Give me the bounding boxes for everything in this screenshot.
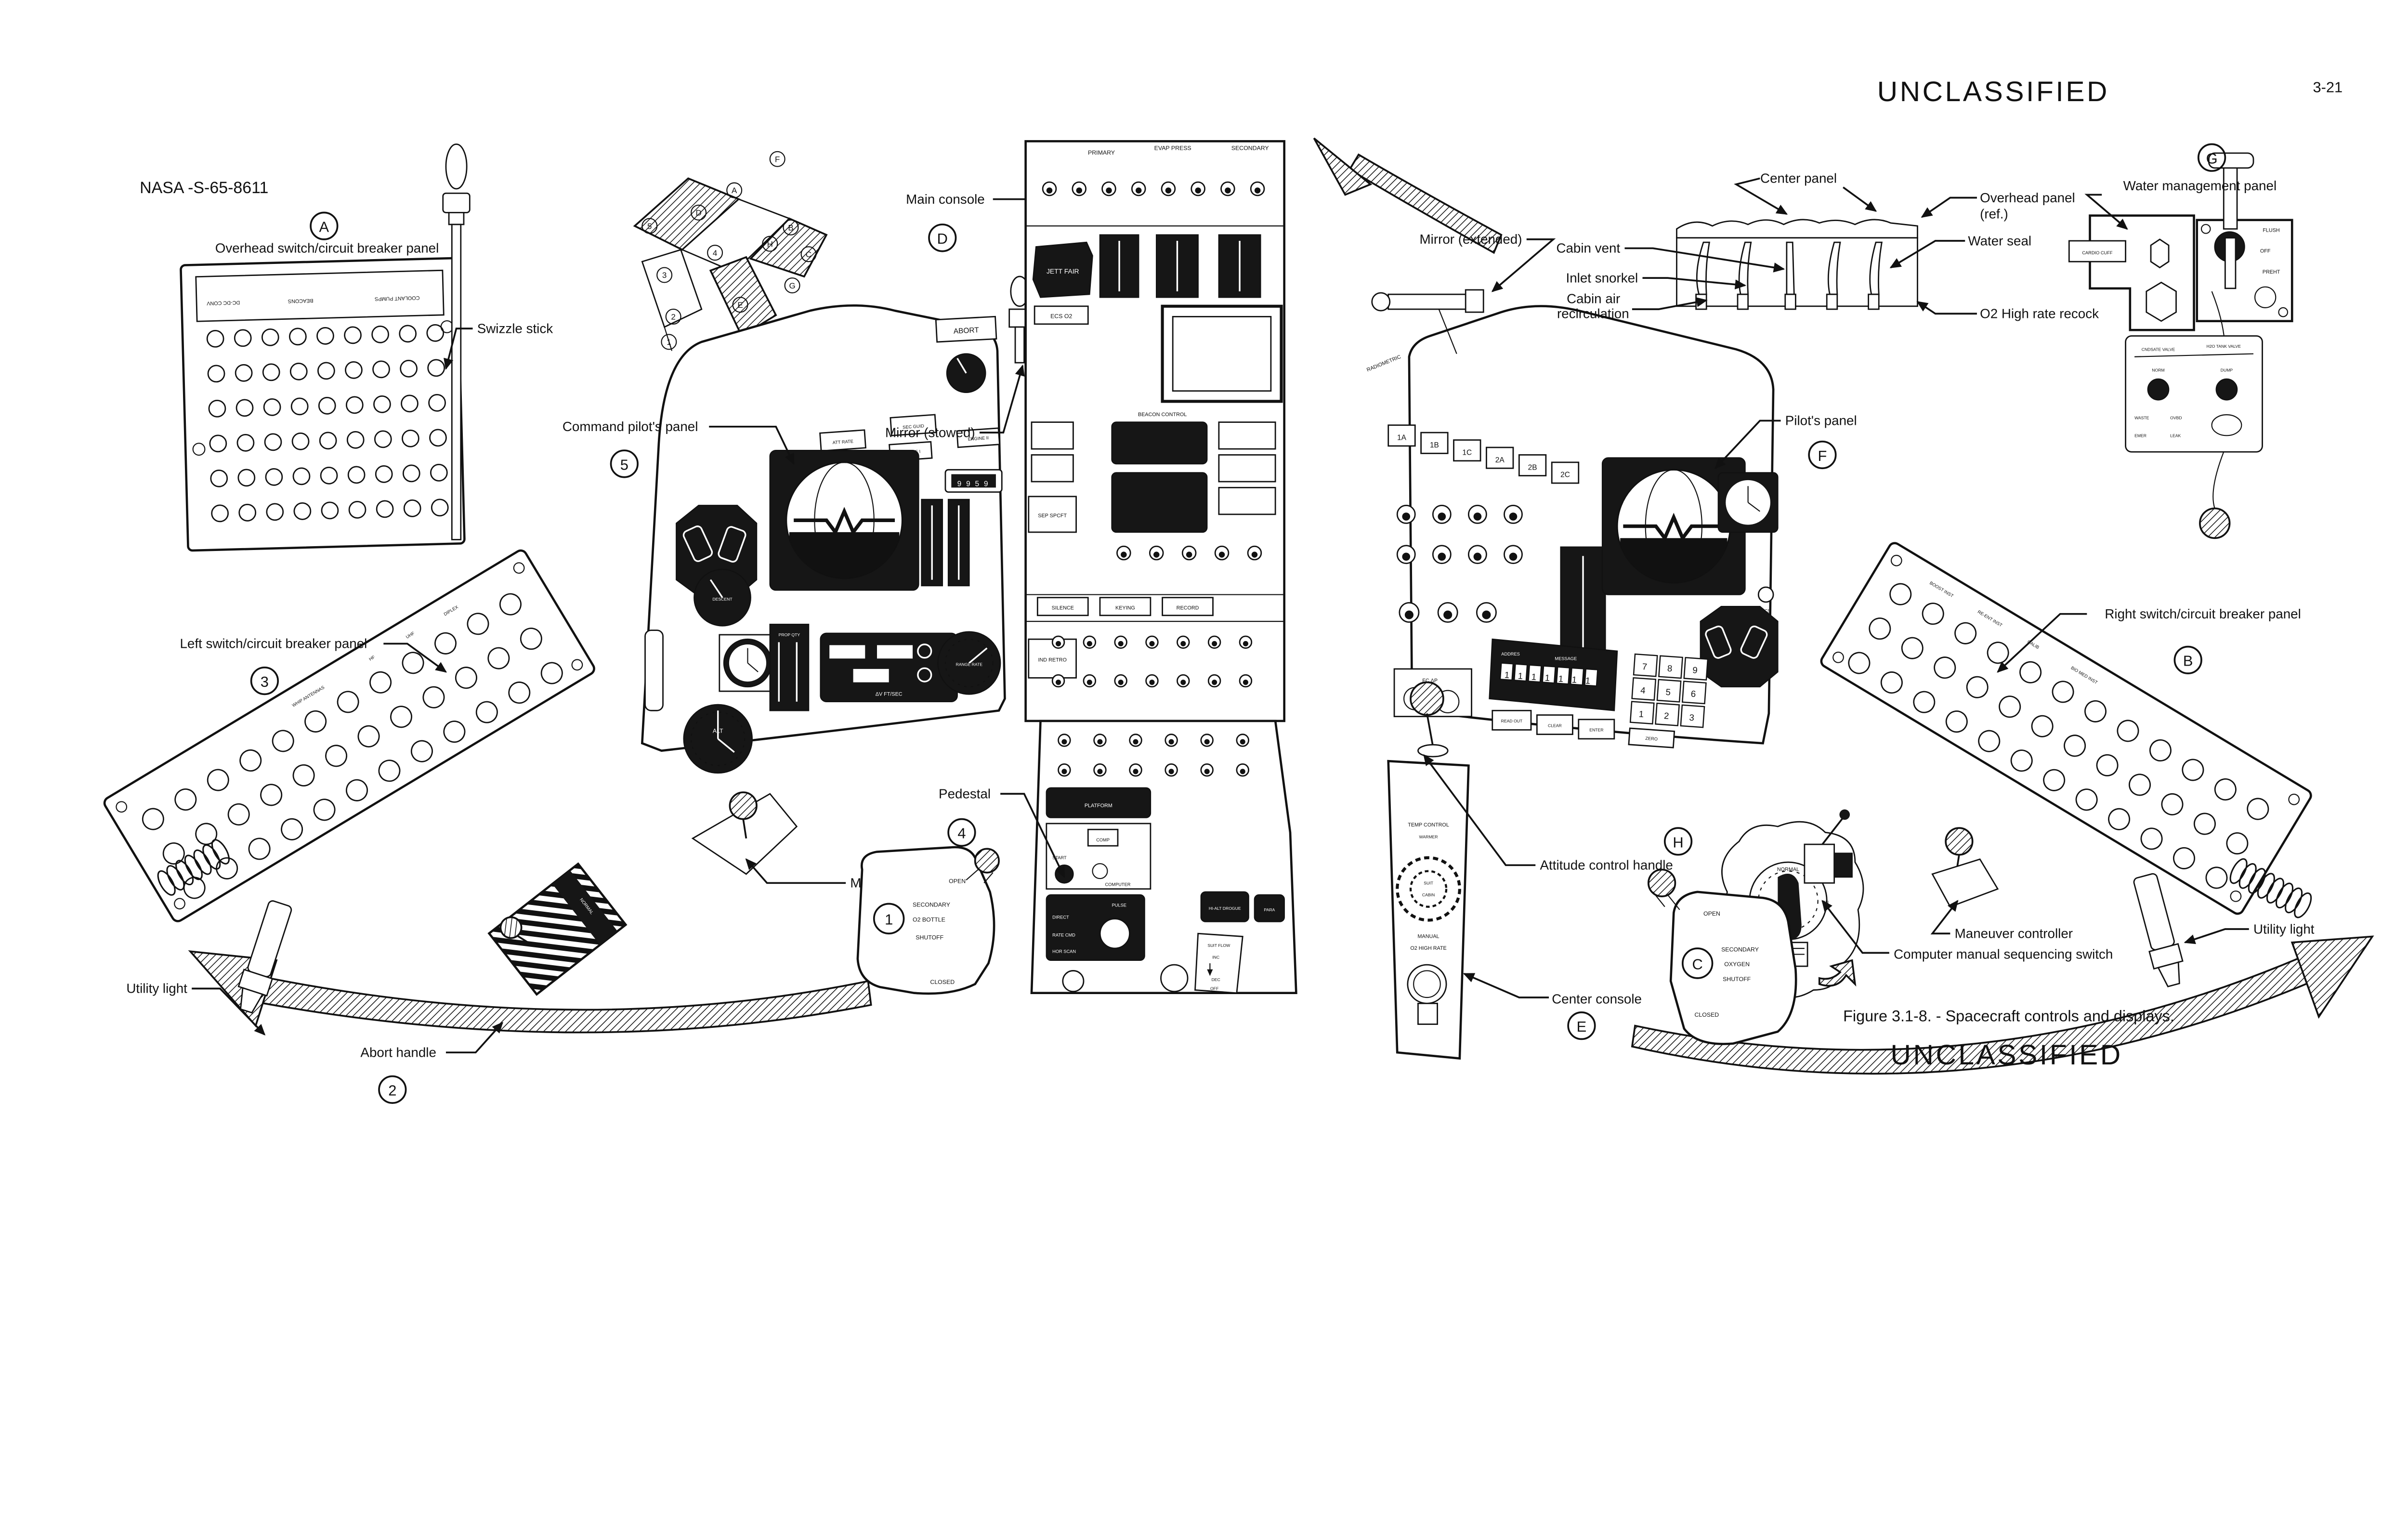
inset-ref: G [789, 281, 795, 290]
callout-label: Mirror (stowed) [885, 425, 975, 440]
svg-text:NORM: NORM [2152, 368, 2164, 373]
purge-switch-row [1400, 603, 1496, 622]
center-console: TEMP CONTROL WARMER SUIT CABIN MANUAL O2… [1388, 761, 1469, 1058]
svg-text:PULSE: PULSE [1112, 903, 1126, 908]
ref-letter: D [937, 230, 948, 247]
svg-text:8: 8 [1667, 663, 1673, 674]
svg-text:5: 5 [1665, 687, 1671, 697]
delta-v-panel: ΔV FT/SEC [821, 633, 957, 702]
panel-marking: EVAP PRESS [1154, 145, 1191, 152]
callout-label: Center console [1552, 991, 1642, 1006]
inset-ref: 2 [671, 313, 675, 322]
callout-label: Command pilot's panel [563, 419, 698, 434]
callout-o2-high-rate-recock: O2 High rate recock [1917, 302, 2099, 321]
utility-light-right [2130, 872, 2188, 989]
callout-label: Utility light [126, 981, 187, 996]
ref-letter: B [2183, 653, 2193, 669]
jett-fair-button: JETT FAIR [1033, 242, 1092, 297]
callout-label: Computer manual sequencing switch [1894, 947, 2113, 962]
altimeter: ALT [684, 705, 752, 773]
svg-text:COMP: COMP [1096, 838, 1110, 842]
overhead-switch-circuit-breaker-panel: COOLANT PUMPS BEACONS DC-DC CONV [181, 258, 464, 551]
valve-label: OXYGEN [1724, 961, 1750, 968]
svg-text:6: 6 [1690, 689, 1696, 699]
panel-marking: KEYING [1115, 605, 1135, 611]
attitude-control-handle-stick [1411, 682, 1448, 757]
ref-letter: A [319, 218, 329, 235]
callout-label: Mirror (extended) [1420, 232, 1522, 247]
svg-text:1B: 1B [1430, 441, 1439, 449]
svg-text:OVBD: OVBD [2170, 415, 2182, 420]
svg-text:DUMP: DUMP [2221, 368, 2233, 373]
svg-text:JETT FAIR: JETT FAIR [1047, 267, 1079, 275]
para-button: PARA [1255, 895, 1284, 922]
inset-ref: B [788, 223, 793, 232]
svg-text:MESSAGE: MESSAGE [1555, 656, 1577, 661]
cardio-cuff-tab: CARDIO CUFF [2069, 241, 2125, 262]
inset-ref: 3 [662, 271, 667, 280]
maneuver-controller-right [1932, 828, 1998, 907]
callout-label: Cabin vent [1556, 241, 1620, 256]
ref-letter: E [1577, 1018, 1587, 1035]
platform-panel: PLATFORM [1047, 788, 1151, 818]
range-rate-gauge: RANGE RATE [938, 632, 1001, 695]
classification-top: UNCLASSIFIED [1877, 76, 2109, 107]
callout-label: (ref.) [1980, 207, 2008, 222]
svg-text:DEC: DEC [1212, 977, 1220, 982]
figure-caption: Figure 3.1-8. - Spacecraft controls and … [1843, 1007, 2174, 1024]
abort-handle: NORMAL [488, 863, 626, 994]
svg-text:ΔV FT/SEC: ΔV FT/SEC [876, 691, 903, 697]
callout-utility-light-right: Utility light [2185, 921, 2315, 943]
computer-panel: COMP START COMPUTER [1047, 824, 1151, 889]
svg-text:READ OUT: READ OUT [1501, 719, 1523, 723]
panel-marking: RECORD [1177, 605, 1199, 611]
panel-marking: SECONDARY [1231, 145, 1269, 152]
callout-main-console: Main console D [906, 192, 1039, 276]
svg-text:1: 1 [1638, 709, 1644, 720]
valve-label: CLOSED [1695, 1011, 1719, 1018]
svg-text:PROP QTY: PROP QTY [779, 632, 800, 637]
panel-marking: ECS O2 [1050, 313, 1072, 319]
callout-maneuver-controller-right: Maneuver controller [1932, 901, 2073, 941]
clock [720, 635, 776, 691]
panel-marking: BEACONS [288, 298, 314, 304]
valve-label: OPEN [1703, 910, 1720, 917]
callout-label: Maneuver controller [1955, 926, 2073, 941]
inset-ref: C [806, 250, 811, 259]
ref-letter: G [2206, 150, 2218, 167]
callout-label: Overhead switch/circuit breaker panel [215, 241, 439, 256]
main-console: PRIMARY EVAP PRESS SECONDARY JETT FAIR E… [1026, 141, 1284, 721]
svg-text:9: 9 [1692, 665, 1698, 675]
classification-bottom: UNCLASSIFIED [1891, 1039, 2123, 1071]
panel-marking: PREHT [2263, 269, 2280, 275]
ref-letter: H [1673, 834, 1683, 851]
callout-mirror-extended: Mirror (extended) [1420, 232, 1554, 291]
valve-label: SECONDARY [1721, 946, 1759, 953]
panel-marking: WARMER [1419, 835, 1438, 839]
panel-marking: COOLANT PUMPS [375, 295, 420, 302]
attitude-control-panel: PULSE DIRECT RATE CMD HOR SCAN ATTITUDE … [1047, 895, 1145, 971]
panel-marking: DC-DC CONV [206, 300, 240, 306]
callout-center-panel: Center panel [1736, 171, 1876, 214]
panel-marking: TEMP CONTROL [1408, 822, 1449, 828]
event-timer: 9959 [945, 470, 1002, 492]
ref-letter: C [1692, 956, 1703, 972]
svg-text:RATE CMD: RATE CMD [1052, 932, 1075, 937]
inset-ref: 1 [667, 338, 671, 347]
pedestal: PLATFORM COMP START COMPUTER PULSE DIREC… [1032, 721, 1296, 993]
inset-ref: E [737, 301, 743, 310]
ref-letter: F [1818, 447, 1827, 464]
clock [1718, 472, 1778, 532]
svg-text:ATTITUDE CONTROL: ATTITUDE CONTROL [1073, 967, 1118, 971]
svg-text:CNDSATE VALVE: CNDSATE VALVE [2142, 347, 2175, 352]
suit-flow-strip: SUIT FLOW INC DEC OFF [1195, 933, 1243, 993]
page-number: 3-21 [2313, 79, 2343, 95]
callout-label: Main console [906, 192, 985, 207]
callout-label: Pedestal [939, 786, 991, 801]
document-page: NASA -S-65-8611 UNCLASSIFIED 3-21 COOLAN… [0, 0, 2408, 1174]
svg-text:1C: 1C [1462, 448, 1472, 457]
svg-text:PLATFORM: PLATFORM [1085, 803, 1112, 809]
svg-text:COMPUTER: COMPUTER [1105, 882, 1131, 887]
callout-label: Attitude control handle [1540, 858, 1673, 873]
ref-number: 1 [885, 911, 893, 928]
inset-ref: A [732, 186, 737, 195]
fdai-attitude-ball [770, 450, 919, 590]
panel-marking: BEACON CONTROL [1138, 412, 1187, 418]
maneuver-controller-left [693, 792, 797, 874]
water-management-panel: CARDIO CUFF FLUSH OFF PREHT CNDSATE VALV… [2069, 153, 2292, 538]
svg-text:2C: 2C [1560, 471, 1570, 479]
panel-marking: RADIOMETRIC [1366, 354, 1402, 373]
valve-label: CLOSED [930, 979, 955, 985]
right-switch-circuit-breaker-panel: BOOST INST RE-ENT INST CALIB BIO MED INS… [1819, 541, 2314, 920]
panel-marking: PRIMARY [1088, 149, 1115, 156]
panel-marking: O2 HIGH RATE [1410, 945, 1446, 951]
callout-label: Cabin air [1567, 291, 1620, 306]
svg-text:EMER: EMER [2134, 433, 2146, 438]
svg-text:DIRECT: DIRECT [1052, 915, 1069, 919]
svg-text:LEAK: LEAK [2170, 433, 2181, 438]
callout-label: Right switch/circuit breaker panel [2105, 606, 2301, 621]
inset-ref: 5 [647, 222, 652, 231]
svg-text:INC: INC [1212, 955, 1219, 960]
svg-text:7: 7 [1642, 661, 1648, 672]
panel-marking: SEP SPCFT [1038, 513, 1067, 519]
hi-alt-drogue-button: HI-ALT DROGUE [1201, 892, 1249, 922]
svg-text:HI-ALT DROGUE: HI-ALT DROGUE [1209, 906, 1241, 911]
callout-swizzle-stick: Swizzle stick [446, 321, 553, 368]
svg-text:CABIN: CABIN [1422, 892, 1435, 897]
svg-text:HOR SCAN: HOR SCAN [1052, 949, 1076, 954]
water-valve-placard: CNDSATE VALVE H2O TANK VALVE NORM DUMP W… [2126, 336, 2263, 452]
mdiu-readout: ADDRES MESSAGE 1111111 [1490, 639, 1617, 710]
panel-marking: MANUAL [1418, 934, 1440, 940]
panel-marking: FLUSH [2263, 227, 2279, 233]
secondary-o2-bottle-shutoff: 1 SECONDARY O2 BOTTLE SHUTOFF OPEN CLOSE… [858, 847, 999, 994]
handle-marking: NORMAL [1777, 867, 1799, 873]
overhead-cabin-section [1676, 220, 1917, 309]
svg-text:ZERO: ZERO [1645, 736, 1658, 742]
svg-text:CARDIO CUFF: CARDIO CUFF [2082, 250, 2113, 255]
water-hose-nozzle [2200, 509, 2230, 538]
svg-text:H2O TANK VALVE: H2O TANK VALVE [2207, 344, 2241, 349]
callout-label: Utility light [2253, 921, 2315, 936]
valve-label: O2 BOTTLE [913, 917, 945, 923]
inset-ref: 4 [713, 249, 717, 258]
svg-text:WASTE: WASTE [2134, 415, 2149, 420]
inset-ref: H [767, 239, 773, 249]
doc-number: NASA -S-65-8611 [140, 179, 268, 197]
ref-letter: 3 [261, 673, 269, 690]
svg-text:SUIT: SUIT [1424, 880, 1433, 885]
abort-indicator-label: ABORT [953, 326, 979, 336]
svg-text:4: 4 [1640, 685, 1646, 695]
svg-text:CLEAR: CLEAR [1548, 723, 1562, 728]
panel-marking: IND RETRO [1038, 657, 1066, 663]
svg-text:2A: 2A [1495, 456, 1505, 464]
callout-overhead-panel-ref: Overhead panel (ref.) [1922, 190, 2075, 222]
callout-label: Water management panel [2123, 178, 2277, 193]
svg-text:9959: 9959 [957, 480, 993, 488]
callout-label: Overhead panel [1980, 190, 2075, 205]
ref-letter: 2 [388, 1082, 396, 1099]
callout-label: recirculation [1557, 306, 1629, 321]
callout-label: Left switch/circuit breaker panel [180, 636, 367, 651]
valve-label: SHUTOFF [1723, 976, 1751, 983]
panel-marking: SILENCE [1052, 605, 1074, 611]
valve-label: SECONDARY [913, 902, 950, 908]
svg-text:3: 3 [1689, 712, 1695, 723]
inset-ref: D [695, 209, 701, 218]
valve-label: SHUTOFF [916, 934, 943, 941]
callout-center-console: Center console E [1464, 974, 1642, 1039]
svg-text:PARA: PARA [1264, 907, 1275, 912]
callout-label: O2 High rate recock [1980, 306, 2099, 321]
inset-ref: F [775, 155, 780, 164]
callout-label: Pilot's panel [1785, 413, 1857, 428]
panel-marking: OFF [2260, 249, 2271, 254]
callout-abort-handle: Abort handle 2 [360, 1023, 502, 1103]
svg-text:ADDRES: ADDRES [1501, 652, 1520, 656]
callout-label: Water seal [1968, 233, 2031, 248]
svg-text:ENTER: ENTER [1589, 728, 1603, 733]
radar-att-selectors [1701, 606, 1778, 687]
command-pilots-panel: ABORT ATT RATE SEC GUID ENGINE I ENGINE … [642, 305, 1005, 773]
ref-letter: 4 [957, 825, 966, 842]
callout-label: Abort handle [360, 1045, 436, 1060]
svg-text:SUIT FLOW: SUIT FLOW [1207, 943, 1230, 948]
valve-label: OPEN [949, 878, 966, 884]
ref-letter: 5 [620, 456, 628, 473]
callout-overhead-panel: A Overhead switch/circuit breaker panel [215, 212, 439, 255]
descent-rate-gauge: DESCENT [694, 569, 750, 626]
prop-qty-gauge: PROP QTY [770, 624, 809, 710]
callout-label: Swizzle stick [477, 321, 553, 336]
svg-text:1A: 1A [1397, 434, 1407, 442]
svg-text:OFF: OFF [1210, 986, 1218, 991]
svg-text:2: 2 [1663, 710, 1669, 721]
callout-label: Center panel [1760, 171, 1837, 186]
left-switch-circuit-breaker-panel: WHIP ANTENNAS HF UHF DIPLEX [102, 548, 596, 923]
svg-text:2B: 2B [1528, 463, 1537, 472]
callout-label: Inlet snorkel [1566, 270, 1638, 285]
